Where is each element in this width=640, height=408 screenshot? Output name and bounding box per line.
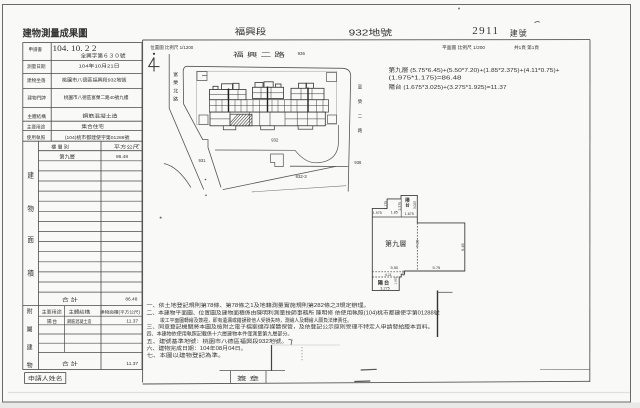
svg-text:第九層: 第九層 xyxy=(59,153,75,160)
svg-text:主要用途: 主要用途 xyxy=(42,309,63,316)
svg-text:86.48: 86.48 xyxy=(125,297,137,303)
svg-text:7.20: 7.20 xyxy=(415,239,420,248)
svg-text:(104)桃市都建使字第01288號: (104)桃市都建使字第01288號 xyxy=(65,134,130,141)
svg-text:面: 面 xyxy=(27,236,34,244)
svg-text:簽 章: 簽 章 xyxy=(237,374,259,382)
svg-text:富: 富 xyxy=(358,84,363,91)
svg-text:物: 物 xyxy=(27,204,34,213)
svg-text:四、本建物依使用執照記載係十六層建物本件僅測量第九層部分。: 四、本建物依使用執照記載係十六層建物本件僅測量第九層部分。 xyxy=(147,330,293,338)
svg-text:建物坐落: 建物坐落 xyxy=(27,77,46,84)
svg-text:11.37: 11.37 xyxy=(126,319,138,325)
svg-text:路: 路 xyxy=(173,96,178,103)
svg-text:1.925: 1.925 xyxy=(394,277,398,285)
svg-text:位置圖 比例尺 1/1200: 位置圖 比例尺 1/1200 xyxy=(150,44,194,51)
svg-text:1.975: 1.975 xyxy=(373,211,382,215)
svg-text:榮: 榮 xyxy=(358,98,363,105)
svg-text:鋼筋混凝土造: 鋼筋混凝土造 xyxy=(83,113,118,120)
svg-text:福 興 二 路: 福 興 二 路 xyxy=(233,51,285,59)
svg-text:104. 10. 2 2: 104. 10. 2 2 xyxy=(53,43,97,53)
svg-text:1.175: 1.175 xyxy=(384,201,388,210)
svg-text:五、建號基準地號：桃園市八德區福興段932地號。: 五、建號基準地號：桃園市八德區福興段932地號。 xyxy=(147,337,288,345)
svg-text:附: 附 xyxy=(27,308,33,316)
svg-text:936: 936 xyxy=(354,160,362,165)
svg-text:第九層: 第九層 xyxy=(385,239,407,248)
svg-text:4.11: 4.11 xyxy=(385,273,392,277)
svg-text:6.45: 6.45 xyxy=(460,242,465,251)
svg-text:台: 台 xyxy=(405,202,410,209)
svg-text:0.75: 0.75 xyxy=(401,270,405,276)
svg-text:二、本建物平面圖、位置圖及建物面積係由陳明利測量技師事務所: 二、本建物平面圖、位置圖及建物面積係由陳明利測量技師事務所 陳明修 依使用執照(… xyxy=(147,309,441,317)
svg-text:樓 層 別: 樓 層 別 xyxy=(51,144,69,151)
svg-text:11.37: 11.37 xyxy=(126,361,138,367)
svg-text:建物測量成果圖: 建物測量成果圖 xyxy=(23,26,88,39)
svg-text:二: 二 xyxy=(358,113,363,118)
svg-text:主體結構: 主體結構 xyxy=(27,113,46,120)
svg-text:申請人姓名: 申請人姓名 xyxy=(28,375,63,383)
svg-text:六、建物完成日期：104年08月04日。: 六、建物完成日期：104年08月04日。 xyxy=(147,344,247,352)
svg-text:桃園市八德區富榮二路40號九樓: 桃園市八德區富榮二路40號九樓 xyxy=(64,94,129,101)
svg-text:建: 建 xyxy=(27,344,33,352)
svg-text:七、本圖以建物登記為準。: 七、本圖以建物登記為準。 xyxy=(147,351,225,359)
svg-text:積: 積 xyxy=(27,269,34,278)
svg-text:富: 富 xyxy=(173,71,178,78)
svg-text:第九層 (5.75*6.45)+(5.50*7.20)+(1: 第九層 (5.75*6.45)+(5.50*7.20)+(1.85*2.375)… xyxy=(389,66,561,74)
svg-text:物: 物 xyxy=(27,362,33,370)
svg-text:平面圖 比例尺 1/200: 平面圖 比例尺 1/200 xyxy=(442,44,486,51)
svg-text:陽台: 陽台 xyxy=(47,318,58,325)
svg-text:榮: 榮 xyxy=(173,79,178,86)
svg-text:合 計: 合 計 xyxy=(62,296,78,303)
svg-text:北: 北 xyxy=(173,87,178,94)
svg-text:使用執照: 使用執照 xyxy=(27,134,46,141)
svg-text:(1.975*1.175)=86.48: (1.975*1.175)=86.48 xyxy=(389,76,462,82)
svg-text:一、依土地登記規則第78條、第78條之1及地籍測量實施規則第: 一、依土地登記規則第78條、第78條之1及地籍測量實施規則第282條之3規定辦理… xyxy=(147,301,370,309)
svg-text:3.025: 3.025 xyxy=(413,201,417,209)
svg-text:三、同意登記機關將本圖及檢附之電子檔案儲存媒體保管，及依登記: 三、同意登記機關將本圖及檢附之電子檔案儲存媒體保管，及依登記公示原則受理不特定人… xyxy=(147,323,434,331)
svg-text:931: 931 xyxy=(199,158,207,163)
svg-text:936: 936 xyxy=(298,51,306,56)
svg-text:86.48: 86.48 xyxy=(116,154,128,160)
svg-text:2.375: 2.375 xyxy=(398,202,402,211)
svg-text:建物門牌: 建物門牌 xyxy=(27,95,46,102)
svg-text:合 計: 合 計 xyxy=(62,361,78,368)
svg-text:測量日期: 測量日期 xyxy=(27,63,46,70)
svg-text:桃園市八德區福興段932地號: 桃園市八德區福興段932地號 xyxy=(62,77,127,84)
svg-text:5.50: 5.50 xyxy=(391,265,400,270)
svg-text:3.275: 3.275 xyxy=(380,286,390,290)
svg-text:平方公尺: 平方公尺 xyxy=(114,144,139,151)
svg-text:2911: 2911 xyxy=(472,25,499,37)
svg-text:陽台: 陽台 xyxy=(378,278,390,286)
svg-text:全興字第６３０號: 全興字第６３０號 xyxy=(81,52,127,60)
svg-text:主體結構: 主體結構 xyxy=(69,309,91,316)
svg-text:建號: 建號 xyxy=(510,28,528,38)
svg-text:104年10月21日: 104年10月21日 xyxy=(79,63,120,70)
svg-text:932: 932 xyxy=(271,138,279,143)
svg-text:建物面積(平方公尺): 建物面積(平方公尺) xyxy=(100,309,141,316)
svg-text:鋼筋混凝土造: 鋼筋混凝土造 xyxy=(67,318,92,325)
svg-text:5.75: 5.75 xyxy=(433,265,442,270)
svg-text:申請書: 申請書 xyxy=(29,46,43,53)
svg-text:1.85: 1.85 xyxy=(391,211,398,215)
svg-text:1.675: 1.675 xyxy=(405,212,414,216)
svg-text:竣工平面圖轉繪及簽證，即有遺漏或錯誤致他人受損失時，測繪人及: 竣工平面圖轉繪及簽證，即有遺漏或錯誤致他人受損失時，測繪人及轉繪人願負法律責任。 xyxy=(160,316,352,324)
svg-text:集合住宅: 集合住宅 xyxy=(82,123,105,130)
svg-text:路: 路 xyxy=(358,127,363,134)
svg-text:福興段: 福興段 xyxy=(235,26,267,37)
svg-text:932地號: 932地號 xyxy=(349,26,393,37)
svg-text:陽台 (1.675*3.025)+(3.275*1.925): 陽台 (1.675*3.025)+(3.275*1.925)=11.37 xyxy=(389,83,507,91)
svg-text:屬: 屬 xyxy=(27,327,33,334)
svg-text:主要用途: 主要用途 xyxy=(27,124,46,131)
svg-text:建: 建 xyxy=(27,171,34,180)
svg-text:共1頁 第1頁: 共1頁 第1頁 xyxy=(514,44,540,51)
